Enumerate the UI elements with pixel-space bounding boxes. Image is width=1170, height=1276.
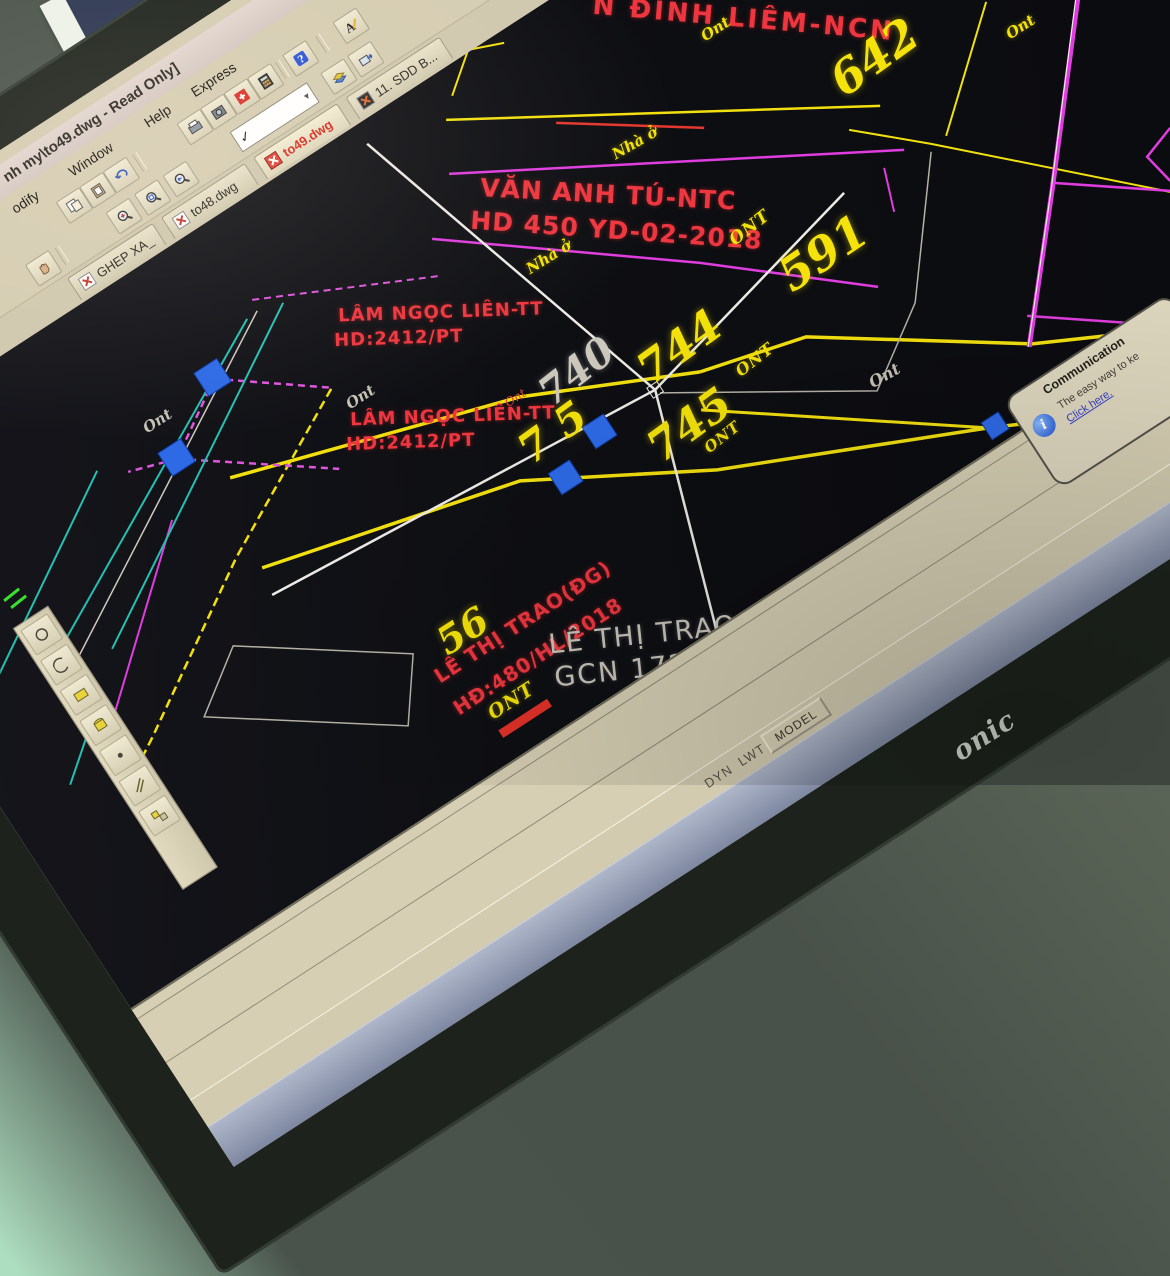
green-marks [4, 589, 26, 608]
contract-label: HD:2412/PT [346, 432, 476, 455]
chevron-down-icon: ▾ [302, 90, 312, 102]
info-icon: i [1028, 409, 1060, 441]
cyan-boundary-lines [0, 303, 283, 785]
toolbar-separator [315, 33, 330, 52]
dwg-file-icon [171, 210, 192, 231]
red-lines [556, 123, 704, 128]
layer-combo-value: ✓ [236, 126, 255, 147]
contract-label: HD:2412/PT [334, 328, 464, 351]
dwg-file-icon-active [263, 150, 284, 171]
dwg-file-icon [77, 271, 98, 292]
dwg-file-icon [355, 90, 376, 111]
block-tool-icon[interactable] [138, 794, 181, 837]
